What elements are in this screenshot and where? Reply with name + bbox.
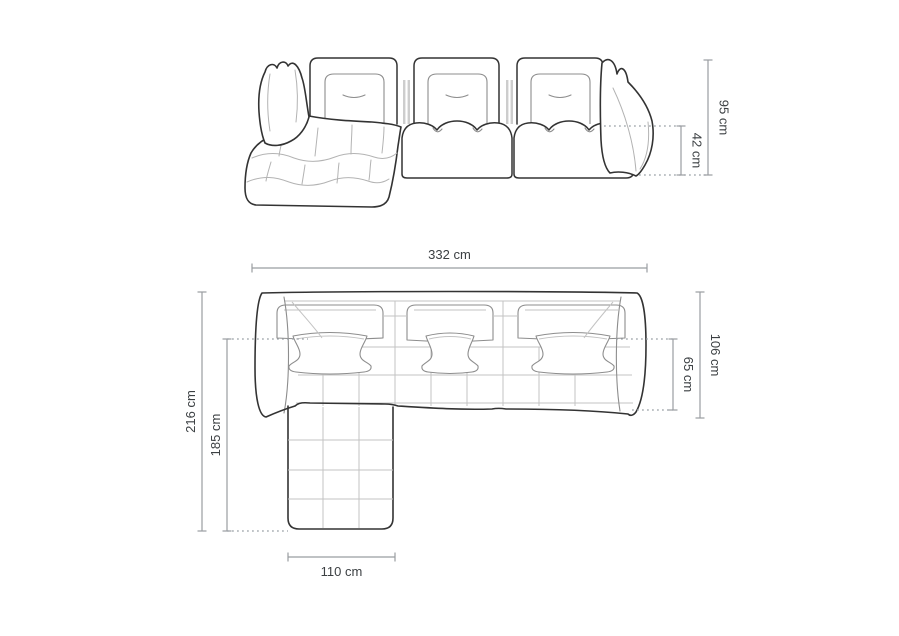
dimension-label-chaise-width: 110 cm [321,564,363,579]
dimension-overall-depth: 216 cm [183,292,207,531]
front-view: 95 cm 42 cm [245,58,732,207]
dimension-label-total-depth: 106 cm [708,334,723,377]
plan-head-cushion-left [289,333,371,375]
diagram-canvas: 95 cm 42 cm [0,0,899,636]
dimension-label-overall-depth: 216 cm [183,390,198,433]
dimension-chaise-depth: 185 cm [208,339,232,531]
module-gap-right [506,80,513,124]
dimension-total-height: 95 cm [704,60,732,175]
front-sofa-drawing [245,58,653,207]
module-gap-left [403,80,410,124]
dimension-label-total-width: 332 cm [428,247,471,262]
plan-dimensions: 332 cm 216 cm 185 cm [183,247,723,579]
dimension-label-total-height: 95 cm [717,100,732,135]
plan-head-cushion-right [532,333,614,375]
sofa-dimension-diagram: 95 cm 42 cm [0,0,899,636]
back-pillow-right [531,74,590,124]
plan-view: 332 cm 216 cm 185 cm [183,247,723,579]
plan-chaise-grid [288,407,393,528]
dimension-total-width: 332 cm [252,247,647,273]
dimension-chaise-width: 110 cm [288,553,395,580]
back-pillow-middle [428,74,487,124]
dimension-seat-height: 42 cm [677,126,705,175]
plan-chaise-outline [288,406,393,529]
dimension-label-seat-height: 42 cm [690,133,705,168]
dimension-label-seat-depth: 65 cm [681,357,696,392]
dimension-seat-depth: 65 cm [669,339,697,410]
seat-cushion-middle [402,121,512,178]
dimension-total-depth: 106 cm [696,292,724,418]
dimension-label-chaise-depth: 185 cm [208,414,223,457]
plan-sofa-drawing [255,292,646,530]
back-pillow-left [325,74,384,124]
armrest-left-front [259,62,309,145]
